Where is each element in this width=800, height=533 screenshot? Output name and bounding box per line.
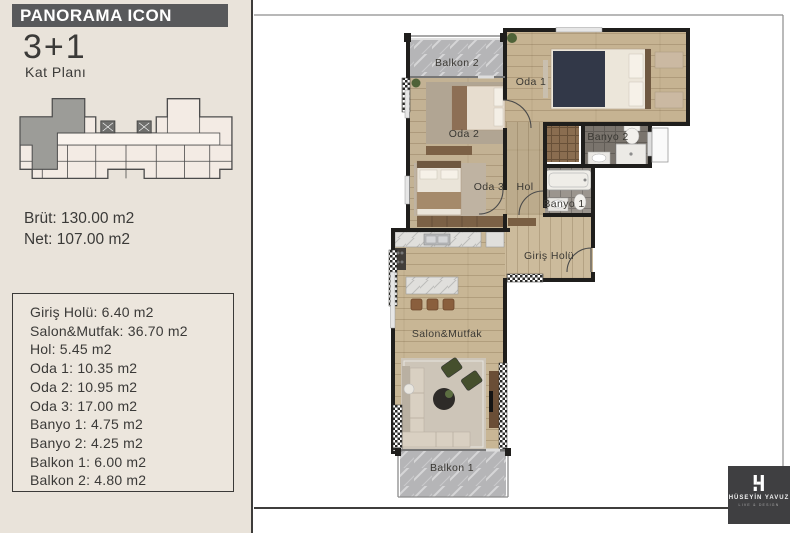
- area-list-box: Giriş Holü: 6.40 m2Salon&Mutfak: 36.70 m…: [12, 293, 234, 492]
- area-list-item: Banyo 2: 4.25 m2: [30, 434, 233, 453]
- nightstand: [655, 52, 683, 68]
- bar-stool: [411, 299, 422, 310]
- dresser: [417, 216, 503, 227]
- area-list-item: Giriş Holü: 6.40 m2: [30, 303, 233, 322]
- plan-type: 3+1: [23, 28, 87, 67]
- area-list-item: Banyo 1: 4.75 m2: [30, 415, 233, 434]
- area-list-item: Oda 2: 10.95 m2: [30, 378, 233, 397]
- plant-icon: [445, 390, 453, 398]
- room-hol: [505, 122, 545, 215]
- area-list-item: Salon&Mutfak: 36.70 m2: [30, 322, 233, 341]
- label-balkon-1: Balkon 1: [430, 462, 474, 474]
- brand-title: PANORAMA ICON: [20, 6, 172, 25]
- label-hol: Hol: [517, 181, 534, 193]
- bar-stool: [443, 299, 454, 310]
- area-list: Giriş Holü: 6.40 m2Salon&Mutfak: 36.70 m…: [13, 294, 233, 490]
- label-banyo-2: Banyo 2: [587, 131, 628, 143]
- flyer-page: Balkon 2 Oda 1 Oda 2 Banyo 2 Oda 3 Hol B…: [0, 0, 800, 533]
- label-banyo-1: Banyo 1: [543, 198, 584, 210]
- plant-icon: [412, 79, 421, 88]
- logo-name: HÜSEYİN YAVUZ: [728, 495, 790, 501]
- label-oda-1: Oda 1: [516, 76, 547, 88]
- corridor: [32, 133, 220, 145]
- area-list-item: Oda 3: 17.00 m2: [30, 397, 233, 416]
- area-list-item: Balkon 2: 4.80 m2: [30, 471, 233, 490]
- gross-area: Brüt: 130.00 m2: [24, 208, 134, 229]
- label-salon-mutfak: Salon&Mutfak: [412, 328, 483, 340]
- kitchen-island: [406, 277, 458, 310]
- console-table: [508, 218, 536, 226]
- label-giris-holu: Giriş Holü: [524, 250, 574, 262]
- dresser: [426, 146, 472, 155]
- area-list-item: Hol: 5.45 m2: [30, 340, 233, 359]
- logo-monogram-icon: [752, 475, 766, 491]
- tv: [489, 391, 493, 412]
- logo-tagline: LIVE & DESIGN: [728, 503, 790, 507]
- plant-icon: [507, 33, 517, 43]
- ac-ledge: [652, 128, 668, 162]
- key-plan-thumbnail: [12, 84, 240, 184]
- sidebar: PANORAMA ICON 3+1 Kat Planı Brüt: 130.00…: [0, 0, 253, 533]
- label-oda-2: Oda 2: [449, 128, 480, 140]
- side-table: [404, 384, 414, 394]
- nightstand: [655, 92, 683, 108]
- label-oda-3: Oda 3: [474, 181, 505, 193]
- plan-subtitle: Kat Planı: [25, 64, 86, 80]
- wardrobe: [547, 126, 579, 162]
- brand-banner: PANORAMA ICON: [12, 4, 228, 27]
- net-area: Net: 107.00 m2: [24, 229, 134, 250]
- brand-logo: HÜSEYİN YAVUZ LIVE & DESIGN: [728, 466, 790, 524]
- label-balkon-2: Balkon 2: [435, 57, 479, 69]
- area-list-item: Oda 1: 10.35 m2: [30, 359, 233, 378]
- area-metrics: Brüt: 130.00 m2 Net: 107.00 m2: [24, 208, 134, 250]
- living-furniture: [401, 357, 500, 450]
- area-list-item: Balkon 1: 6.00 m2: [30, 453, 233, 472]
- bar-stool: [427, 299, 438, 310]
